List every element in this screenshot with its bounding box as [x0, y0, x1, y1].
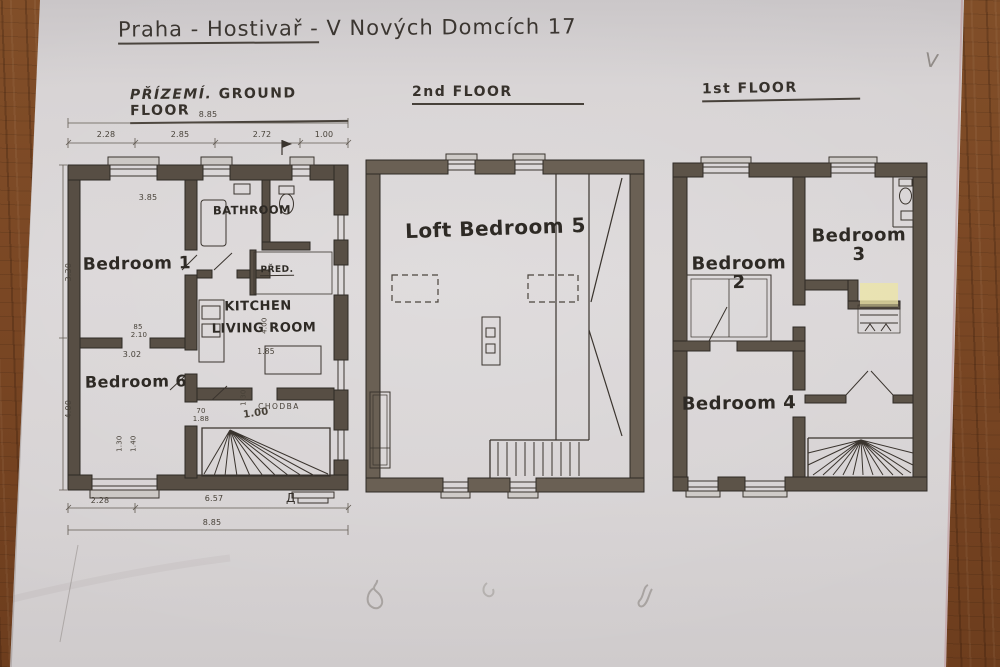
paper-right-edge-line [945, 0, 962, 667]
pencil-line-mark [60, 545, 78, 642]
plan-first-floor: Bedroom 2 Bedroom 3 Bedroom 4 [665, 155, 935, 500]
room-label-bathroom: BATHROOM [206, 203, 298, 216]
toilet-tank [899, 179, 912, 186]
pencil-smudge [368, 580, 383, 608]
heading-ground-cz: PŘÍZEMÍ. [130, 86, 213, 103]
dim-hall-width: 1.30 [240, 384, 247, 412]
roof-slope-line [591, 178, 622, 302]
section-mark: Д [286, 492, 308, 505]
dim-seg-3: 2.72 [232, 131, 292, 139]
window-sills [441, 154, 545, 498]
heading-first-label: 1st FLOOR [702, 80, 798, 98]
roof-slope-line [589, 330, 622, 436]
plan-first-drawing [665, 155, 935, 500]
plan-second-drawing [358, 152, 652, 500]
sink [901, 211, 913, 220]
hall-door-swings [846, 371, 893, 395]
chimney [482, 317, 500, 365]
page-title: Praha - Hostivař - V Nových Domcích 17 [118, 14, 588, 41]
toilet-tank [279, 186, 294, 194]
dim-bedroom6-width: 3.02 [106, 351, 158, 359]
room-label-bedroom1: Bedroom 1 [82, 255, 192, 274]
skylight-dashed-boxes [392, 275, 578, 302]
title-underlined-part: Praha - Hostivař - [118, 16, 319, 44]
dim-window-w: 1.30 [116, 430, 123, 458]
dim-seg-1: 2.28 [76, 131, 136, 139]
plan-ground-floor: Bedroom 1 BATHROOM PŘED. KITCHEN LIVING … [62, 110, 354, 535]
highlight-patch [860, 283, 898, 307]
sink [234, 184, 250, 194]
heading-second-label: 2nd FLOOR [412, 84, 513, 100]
title-rest-part: V Nových Domcích 17 [319, 14, 577, 40]
room-label-bedroom3: Bedroom 3 [803, 226, 916, 265]
dim-bottom-total: 8.85 [186, 519, 238, 527]
dim-kitchen-depth: 4.00 [261, 311, 268, 341]
room-label-bedroom4: Bedroom 4 [681, 394, 797, 415]
paper-left-edge-shadow [11, 0, 39, 667]
outer-walls [366, 160, 644, 492]
dim-window-w2: 1.40 [130, 430, 137, 458]
interior-walls [673, 177, 913, 477]
room-label-pred: PŘED. [256, 266, 298, 276]
photo-background: Praha - Hostivař - V Nových Domcích 17 V… [0, 0, 1000, 667]
dim-bottom-left: 2.28 [76, 497, 124, 505]
paper-crease [0, 558, 230, 602]
pencil-smudge [639, 585, 652, 606]
dim-seg-2: 2.85 [150, 131, 210, 139]
staircase-winder [202, 428, 330, 476]
room-label-kitchen: KITCHEN [214, 299, 302, 314]
dim-table-width: 1.85 [248, 348, 284, 356]
dim-left-lower: 4.00 [65, 392, 73, 426]
room-label-bedroom2: Bedroom 2 [683, 254, 796, 293]
dim-door-height: 2.10 [124, 332, 154, 339]
heading-first-floor: 1st FLOOR [702, 79, 860, 103]
north-flag-mark [282, 140, 292, 155]
dim-seg-4: 1.00 [302, 131, 346, 139]
toilet-bowl [900, 188, 912, 204]
dim-left-upper: 3.30 [65, 255, 73, 289]
room-label-bedroom6: Bedroom 6 [84, 373, 188, 391]
heading-second-floor: 2nd FLOOR [412, 84, 584, 105]
dim-bottom-mid: 6.57 [190, 495, 238, 503]
bathroom-nook [893, 177, 913, 227]
staircase-straight [490, 440, 589, 478]
dim-top-total: 8.85 [183, 111, 233, 119]
staircase-winder [808, 438, 913, 477]
plan-second-floor: Loft Bedroom 5 [358, 152, 652, 500]
dim-small-height: 1.88 [188, 416, 214, 423]
pencil-smudge [483, 583, 493, 596]
paper-sheet: Praha - Hostivař - V Nových Domcích 17 V… [0, 0, 1000, 667]
dim-bedroom1-width: 3.85 [120, 194, 176, 202]
